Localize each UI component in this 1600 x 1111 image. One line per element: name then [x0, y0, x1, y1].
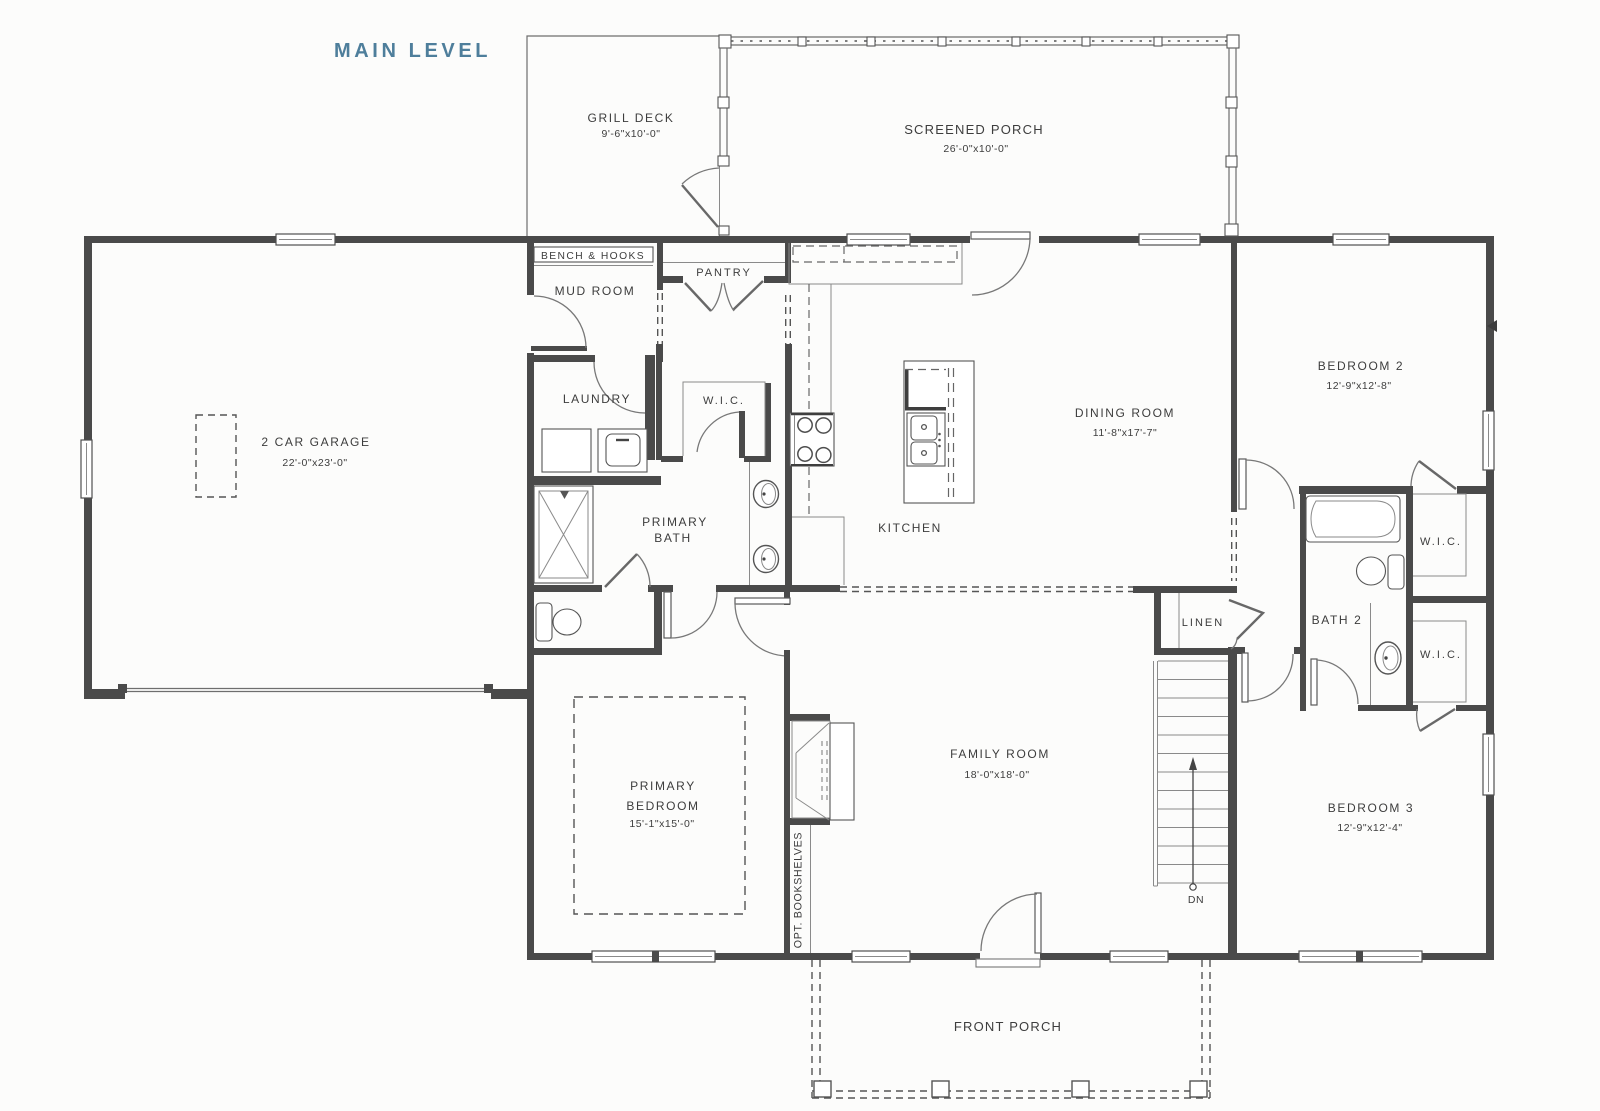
svg-text:BEDROOM 2: BEDROOM 2	[1318, 359, 1404, 373]
svg-text:MAIN LEVEL: MAIN LEVEL	[334, 40, 491, 62]
svg-text:GRILL DECK: GRILL DECK	[588, 111, 675, 125]
svg-text:PRIMARY: PRIMARY	[630, 779, 696, 793]
svg-text:15'-1"x15'-0": 15'-1"x15'-0"	[629, 818, 694, 830]
svg-text:2 CAR GARAGE: 2 CAR GARAGE	[261, 435, 370, 449]
svg-text:11'-8"x17'-7": 11'-8"x17'-7"	[1093, 427, 1157, 439]
svg-text:KITCHEN: KITCHEN	[878, 521, 942, 535]
svg-text:LAUNDRY: LAUNDRY	[563, 392, 631, 406]
svg-text:9'-6"x10'-0": 9'-6"x10'-0"	[602, 128, 661, 140]
svg-text:OPT. BOOKSHELVES: OPT. BOOKSHELVES	[793, 832, 805, 948]
svg-text:PANTRY: PANTRY	[696, 267, 752, 279]
svg-text:26'-0"x10'-0": 26'-0"x10'-0"	[943, 143, 1008, 155]
svg-text:BATH: BATH	[654, 531, 692, 545]
svg-text:BENCH & HOOKS: BENCH & HOOKS	[541, 251, 645, 262]
svg-text:18'-0"x18'-0": 18'-0"x18'-0"	[964, 769, 1029, 781]
svg-text:DN: DN	[1188, 894, 1204, 906]
svg-text:BEDROOM 3: BEDROOM 3	[1328, 801, 1414, 815]
svg-text:BEDROOM: BEDROOM	[626, 799, 699, 813]
svg-text:MUD ROOM: MUD ROOM	[555, 284, 636, 298]
svg-text:W.I.C.: W.I.C.	[703, 395, 745, 407]
svg-text:22'-0"x23'-0": 22'-0"x23'-0"	[282, 457, 347, 469]
svg-text:LINEN: LINEN	[1182, 617, 1224, 629]
svg-text:DINING ROOM: DINING ROOM	[1075, 406, 1175, 420]
svg-text:12'-9"x12'-8": 12'-9"x12'-8"	[1326, 380, 1391, 392]
svg-text:12'-9"x12'-4": 12'-9"x12'-4"	[1337, 822, 1402, 834]
svg-text:PRIMARY: PRIMARY	[642, 515, 708, 529]
svg-text:W.I.C.: W.I.C.	[1420, 536, 1462, 548]
svg-text:BATH 2: BATH 2	[1312, 613, 1363, 627]
svg-text:SCREENED PORCH: SCREENED PORCH	[904, 122, 1044, 137]
svg-text:FAMILY ROOM: FAMILY ROOM	[950, 747, 1050, 761]
svg-text:FRONT PORCH: FRONT PORCH	[954, 1019, 1062, 1034]
svg-text:W.I.C.: W.I.C.	[1420, 649, 1462, 661]
